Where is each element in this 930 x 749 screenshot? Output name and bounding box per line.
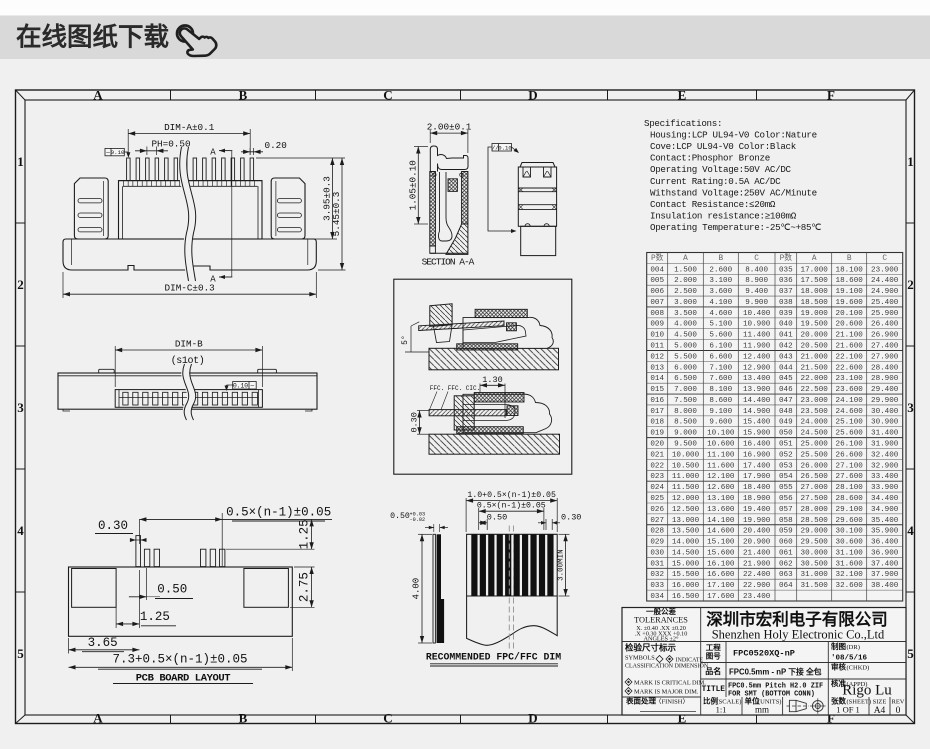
svg-text:008: 008: [650, 310, 664, 318]
svg-text:37.900: 37.900: [871, 571, 899, 579]
svg-text:图号: 图号: [706, 652, 721, 661]
svg-text:009: 009: [650, 321, 664, 329]
svg-text:0.50: 0.50: [390, 512, 410, 521]
svg-text:A: A: [683, 255, 688, 263]
svg-text:27.000: 27.000: [801, 484, 829, 492]
svg-text:CLASSIFICATION DIMENSION: CLASSIFICATION DIMENSION: [625, 664, 709, 670]
svg-text:4: 4: [17, 523, 24, 538]
svg-text:23.500: 23.500: [801, 408, 829, 416]
svg-text:30.100: 30.100: [836, 528, 864, 536]
svg-text:053: 053: [779, 462, 793, 470]
svg-text:014: 014: [650, 375, 664, 383]
svg-text:15.600: 15.600: [707, 549, 735, 557]
svg-text:13.400: 13.400: [743, 375, 771, 383]
svg-text:一般公差: 一般公差: [646, 606, 676, 616]
svg-text:27.400: 27.400: [871, 343, 899, 351]
svg-text:16.100: 16.100: [707, 560, 735, 568]
svg-text:15.100: 15.100: [707, 539, 735, 547]
svg-text:5: 5: [17, 646, 24, 661]
svg-text:018: 018: [650, 419, 664, 427]
svg-text:1:1: 1:1: [716, 705, 727, 715]
svg-text:FPC0520XQ-nP: FPC0520XQ-nP: [733, 649, 795, 659]
svg-text:21.500: 21.500: [801, 364, 829, 372]
svg-text:020: 020: [650, 441, 664, 449]
svg-text:25.500: 25.500: [801, 451, 829, 459]
svg-text:E: E: [678, 88, 687, 103]
svg-text:29.500: 29.500: [801, 539, 829, 547]
svg-text:025: 025: [650, 495, 664, 503]
svg-text:036: 036: [779, 277, 793, 285]
svg-text:30.000: 30.000: [801, 549, 829, 557]
svg-text:11.100: 11.100: [707, 451, 735, 459]
svg-text:035: 035: [779, 266, 793, 274]
svg-text:31.100: 31.100: [836, 549, 864, 557]
svg-text:表面处理: 表面处理: [626, 696, 656, 706]
svg-text:13.500: 13.500: [672, 528, 700, 536]
svg-text:004: 004: [650, 266, 664, 274]
svg-text:019: 019: [650, 430, 664, 438]
svg-text:0.30: 0.30: [98, 519, 128, 533]
svg-text:049: 049: [779, 419, 793, 427]
svg-text:007: 007: [650, 299, 664, 307]
svg-text:045: 045: [779, 375, 793, 383]
svg-text:30.900: 30.900: [871, 419, 899, 427]
svg-text:36.400: 36.400: [871, 539, 899, 547]
svg-text:4.500: 4.500: [674, 332, 697, 340]
svg-text:C: C: [754, 255, 759, 263]
svg-text:12.500: 12.500: [672, 506, 700, 514]
svg-text:19.100: 19.100: [836, 288, 864, 296]
svg-text:FPC0.5mm Pitch H2.0 ZIF: FPC0.5mm Pitch H2.0 ZIF: [728, 683, 823, 691]
svg-text:'08/5/16: '08/5/16: [831, 655, 868, 663]
svg-text:22.600: 22.600: [836, 364, 864, 372]
svg-text:006: 006: [650, 288, 664, 296]
svg-text:6.100: 6.100: [709, 343, 732, 351]
svg-text:Rigo Lu: Rigo Lu: [842, 683, 892, 699]
svg-text:031: 031: [650, 560, 664, 568]
svg-text:4.600: 4.600: [709, 310, 732, 318]
svg-text:022: 022: [650, 462, 664, 470]
svg-text:7.100: 7.100: [709, 364, 732, 372]
svg-text:15.400: 15.400: [743, 419, 771, 427]
svg-text:3.500: 3.500: [674, 310, 697, 318]
svg-text:A: A: [93, 88, 103, 103]
svg-text:3.000: 3.000: [674, 299, 697, 307]
svg-text:F: F: [827, 88, 835, 103]
svg-text:24.400: 24.400: [871, 277, 899, 285]
svg-text:SYMBOLS: SYMBOLS: [625, 655, 655, 662]
svg-text:4.000: 4.000: [674, 321, 697, 329]
svg-text:24.900: 24.900: [871, 288, 899, 296]
svg-text:MARK IS CRITICAL DIM.: MARK IS CRITICAL DIM.: [634, 680, 706, 687]
svg-text:18.500: 18.500: [801, 299, 829, 307]
svg-text:023: 023: [650, 473, 664, 481]
svg-text:PH=0.50: PH=0.50: [151, 138, 190, 149]
svg-text:5.600: 5.600: [709, 332, 732, 340]
svg-text:28.100: 28.100: [836, 484, 864, 492]
svg-text:8.000: 8.000: [674, 408, 697, 416]
svg-text:030: 030: [650, 549, 664, 557]
svg-text:27.900: 27.900: [871, 353, 899, 361]
svg-text:011: 011: [650, 343, 664, 351]
svg-text:8.600: 8.600: [709, 397, 732, 405]
svg-text:25.600: 25.600: [836, 430, 864, 438]
svg-text:5.000: 5.000: [674, 343, 697, 351]
svg-text:(s1ot): (s1ot): [171, 355, 205, 367]
svg-text:18.100: 18.100: [836, 266, 864, 274]
svg-text:1: 1: [17, 154, 24, 169]
svg-text:10.900: 10.900: [743, 321, 771, 329]
svg-text:A4: A4: [874, 706, 886, 716]
svg-text:5.45±0.3: 5.45±0.3: [331, 192, 342, 237]
svg-text:25.900: 25.900: [871, 310, 899, 318]
svg-text:0.50: 0.50: [157, 583, 187, 597]
svg-text:1.30: 1.30: [482, 375, 502, 385]
svg-text:28.500: 28.500: [801, 517, 829, 525]
svg-text:30.400: 30.400: [871, 408, 899, 416]
svg-text:054: 054: [779, 473, 793, 481]
svg-text:4.00: 4.00: [412, 578, 422, 600]
svg-text:9.500: 9.500: [674, 441, 697, 449]
svg-text:26.600: 26.600: [836, 451, 864, 459]
svg-text:6.000: 6.000: [674, 364, 697, 372]
svg-text:32.600: 32.600: [836, 582, 864, 590]
svg-text:26.000: 26.000: [801, 462, 829, 470]
svg-text:1.0+0.5×(n-1)±0.05: 1.0+0.5×(n-1)±0.05: [467, 490, 556, 500]
svg-text:13.600: 13.600: [707, 506, 735, 514]
svg-text:1.25: 1.25: [298, 519, 312, 549]
svg-text:20.000: 20.000: [801, 332, 829, 340]
svg-text:17.100: 17.100: [707, 582, 735, 590]
svg-text:010: 010: [650, 332, 664, 340]
svg-text:13.000: 13.000: [672, 517, 700, 525]
svg-text:3: 3: [17, 400, 24, 415]
svg-text:32.900: 32.900: [871, 462, 899, 470]
svg-text:24.500: 24.500: [801, 430, 829, 438]
svg-text:012: 012: [650, 353, 664, 361]
svg-text:A: A: [210, 148, 216, 158]
svg-text:7.500: 7.500: [674, 397, 697, 405]
svg-text:12.900: 12.900: [743, 364, 771, 372]
svg-text:016: 016: [650, 397, 664, 405]
svg-text:17.400: 17.400: [743, 462, 771, 470]
svg-text:8.500: 8.500: [674, 419, 697, 427]
svg-text:15.900: 15.900: [743, 430, 771, 438]
svg-text:36.900: 36.900: [871, 549, 899, 557]
svg-text:DIM-A±0.1: DIM-A±0.1: [164, 122, 215, 133]
svg-text:33.400: 33.400: [871, 473, 899, 481]
svg-text:5°: 5°: [401, 335, 410, 345]
svg-text:Specifications:: Specifications:: [644, 118, 722, 129]
svg-text:审核: 审核: [831, 662, 846, 672]
svg-text:制图: 制图: [831, 641, 846, 651]
svg-text:29.600: 29.600: [836, 517, 864, 525]
svg-text:30.500: 30.500: [801, 560, 829, 568]
svg-text:060: 060: [779, 539, 793, 547]
svg-text:12.600: 12.600: [707, 484, 735, 492]
svg-text:062: 062: [779, 560, 793, 568]
svg-text:SECTION A-A: SECTION A-A: [422, 257, 475, 268]
svg-text:21.100: 21.100: [836, 332, 864, 340]
svg-text:17.000: 17.000: [801, 266, 829, 274]
svg-text:042: 042: [779, 343, 793, 351]
svg-text:B: B: [718, 255, 723, 263]
svg-text:22.000: 22.000: [801, 375, 829, 383]
svg-text:31.500: 31.500: [801, 582, 829, 590]
svg-text:FPC0.5mm - nP 下接 全包: FPC0.5mm - nP 下接 全包: [729, 667, 822, 677]
svg-text:0.20: 0.20: [265, 140, 287, 151]
svg-text:059: 059: [779, 528, 793, 536]
svg-text:8.400: 8.400: [745, 266, 768, 274]
svg-text:3.65: 3.65: [88, 636, 118, 650]
svg-text:TITLE: TITLE: [702, 686, 726, 694]
svg-text:013: 013: [650, 364, 664, 372]
svg-text:0.30: 0.30: [561, 513, 581, 523]
svg-text:0.30: 0.30: [410, 412, 420, 432]
svg-text:056: 056: [779, 495, 793, 503]
svg-text:058: 058: [779, 517, 793, 525]
svg-text:—: —: [105, 149, 110, 156]
svg-text:12.000: 12.000: [672, 495, 700, 503]
svg-text:D: D: [528, 711, 537, 726]
svg-text:18.000: 18.000: [801, 288, 829, 296]
svg-text:Withstand Voltage:250V AC/Minu: Withstand Voltage:250V AC/Minute: [650, 187, 817, 198]
svg-text:31.000: 31.000: [801, 571, 829, 579]
svg-text:19.000: 19.000: [801, 310, 829, 318]
svg-text:-0.02: -0.02: [410, 517, 426, 523]
svg-text:26.900: 26.900: [871, 332, 899, 340]
svg-text:17.500: 17.500: [801, 277, 829, 285]
svg-text:31.600: 31.600: [836, 560, 864, 568]
svg-text:017: 017: [650, 408, 664, 416]
svg-text:063: 063: [779, 571, 793, 579]
svg-text:21.900: 21.900: [743, 560, 771, 568]
svg-text:20.400: 20.400: [743, 528, 771, 536]
svg-text:043: 043: [779, 353, 793, 361]
svg-text:Shenzhen Holy Electronic Co.,L: Shenzhen Holy Electronic Co.,Ltd: [712, 628, 885, 642]
svg-text:(DR): (DR): [847, 644, 860, 651]
svg-text:10.000: 10.000: [672, 451, 700, 459]
svg-text:11.900: 11.900: [743, 343, 771, 351]
svg-text:2.00±0.1: 2.00±0.1: [427, 122, 472, 133]
svg-text:15.500: 15.500: [672, 571, 700, 579]
svg-text:16.500: 16.500: [672, 593, 700, 601]
svg-text:35.900: 35.900: [871, 528, 899, 536]
svg-text:22.400: 22.400: [743, 571, 771, 579]
svg-text:6.600: 6.600: [709, 353, 732, 361]
svg-text:015: 015: [650, 386, 664, 394]
svg-text:22.900: 22.900: [743, 582, 771, 590]
svg-text:在线图纸下载: 在线图纸下载: [16, 23, 170, 52]
svg-text:SIZE: SIZE: [873, 699, 887, 706]
svg-text:Housing:LCP UL94-V0 Color:Natu: Housing:LCP UL94-V0 Color:Nature: [650, 130, 817, 141]
svg-text:18.400: 18.400: [743, 484, 771, 492]
svg-text:2: 2: [17, 277, 24, 292]
svg-text:3.600: 3.600: [709, 288, 732, 296]
svg-text:9.600: 9.600: [709, 419, 732, 427]
svg-text:0: 0: [896, 706, 901, 716]
svg-text:25.400: 25.400: [871, 299, 899, 307]
svg-text:0.50: 0.50: [487, 513, 507, 523]
svg-text:057: 057: [779, 506, 793, 514]
svg-text:C: C: [882, 255, 887, 263]
svg-text:PCB BOARD LAYOUT: PCB BOARD LAYOUT: [136, 673, 231, 685]
svg-text:14.600: 14.600: [707, 528, 735, 536]
svg-text:13.900: 13.900: [743, 386, 771, 394]
svg-text:TOLERANCES: TOLERANCES: [634, 616, 688, 625]
svg-text:14.100: 14.100: [707, 517, 735, 525]
svg-text:0.10: 0.10: [111, 149, 125, 156]
svg-text:064: 064: [779, 582, 793, 590]
svg-text:A: A: [812, 255, 817, 263]
svg-text:20.600: 20.600: [836, 321, 864, 329]
svg-text:7.600: 7.600: [709, 375, 732, 383]
svg-text:1.500: 1.500: [674, 266, 697, 274]
svg-text:DIM-C±0.3: DIM-C±0.3: [165, 283, 215, 294]
svg-text:18.600: 18.600: [836, 277, 864, 285]
svg-text:21.400: 21.400: [743, 549, 771, 557]
svg-text:29.100: 29.100: [836, 506, 864, 514]
svg-text:10.400: 10.400: [743, 310, 771, 318]
svg-text:4.100: 4.100: [709, 299, 732, 307]
svg-text:4: 4: [907, 523, 914, 538]
svg-text:3: 3: [907, 400, 914, 415]
svg-text:7.000: 7.000: [674, 386, 697, 394]
svg-text:20.500: 20.500: [801, 343, 829, 351]
svg-text:1.05±0.10: 1.05±0.10: [407, 160, 418, 210]
svg-text:5.500: 5.500: [674, 353, 697, 361]
svg-text:16.600: 16.600: [707, 571, 735, 579]
svg-text:2.75: 2.75: [298, 572, 312, 602]
svg-text:029: 029: [650, 539, 664, 547]
svg-text:检验尺寸标示: 检验尺寸标示: [625, 643, 677, 653]
svg-text:34.400: 34.400: [871, 495, 899, 503]
svg-text:2.600: 2.600: [709, 266, 732, 274]
svg-text:23.000: 23.000: [801, 397, 829, 405]
svg-text:9.100: 9.100: [709, 408, 732, 416]
svg-text:7.3+0.5×(n-1)±0.05: 7.3+0.5×(n-1)±0.05: [112, 653, 247, 667]
svg-text:24.100: 24.100: [836, 397, 864, 405]
svg-text:29.900: 29.900: [871, 397, 899, 405]
svg-text:044: 044: [779, 364, 793, 372]
svg-text:032: 032: [650, 571, 664, 579]
svg-text:20.100: 20.100: [836, 310, 864, 318]
svg-text:027: 027: [650, 517, 664, 525]
svg-text:19.900: 19.900: [743, 517, 771, 525]
svg-text:041: 041: [779, 332, 793, 340]
svg-text:038: 038: [779, 299, 793, 307]
svg-text:27.500: 27.500: [801, 495, 829, 503]
svg-text:25.100: 25.100: [836, 419, 864, 427]
svg-text:28.400: 28.400: [871, 364, 899, 372]
svg-text:10.600: 10.600: [707, 441, 735, 449]
svg-text:17.600: 17.600: [707, 593, 735, 601]
svg-text:Current Rating:0.5A AC/DC: Current Rating:0.5A AC/DC: [650, 176, 781, 187]
svg-text:FFC. FFC. CIC.: FFC. FFC. CIC.: [430, 385, 480, 392]
svg-text:B: B: [239, 711, 248, 726]
svg-text:Contact:Phosphor Bronze: Contact:Phosphor Bronze: [650, 153, 770, 164]
svg-text:27.100: 27.100: [836, 462, 864, 470]
svg-text:23.100: 23.100: [836, 375, 864, 383]
svg-text:14.900: 14.900: [743, 408, 771, 416]
svg-text:0.10: 0.10: [233, 383, 248, 390]
svg-text:REV: REV: [892, 699, 905, 706]
svg-text:16.000: 16.000: [672, 582, 700, 590]
svg-text:Contact Resistance:≤20mΩ: Contact Resistance:≤20mΩ: [650, 199, 776, 210]
svg-text:C: C: [383, 88, 392, 103]
svg-text:23.600: 23.600: [836, 386, 864, 394]
svg-text:021: 021: [650, 451, 664, 459]
svg-text:10.100: 10.100: [707, 430, 735, 438]
svg-text:034: 034: [650, 593, 664, 601]
svg-text:9.400: 9.400: [745, 288, 768, 296]
svg-text:38.400: 38.400: [871, 582, 899, 590]
svg-text:052: 052: [779, 451, 793, 459]
svg-text:〈FINISH〉: 〈FINISH〉: [655, 698, 689, 706]
svg-text:25.000: 25.000: [801, 441, 829, 449]
svg-text:30.600: 30.600: [836, 539, 864, 547]
svg-text:5.100: 5.100: [709, 321, 732, 329]
svg-text:19.600: 19.600: [836, 299, 864, 307]
svg-text:3.100: 3.100: [709, 277, 732, 285]
svg-text:23.900: 23.900: [871, 266, 899, 274]
svg-text:(CHKD): (CHKD): [847, 665, 870, 672]
svg-text:050: 050: [779, 430, 793, 438]
svg-text:Operating Voltage:50V AC/DC: Operating Voltage:50V AC/DC: [650, 164, 792, 175]
svg-text:2.000: 2.000: [674, 277, 697, 285]
svg-text:037: 037: [779, 288, 793, 296]
svg-text:13.100: 13.100: [707, 495, 735, 503]
svg-text:RECOMMENDED FPC/FFC DIM: RECOMMENDED FPC/FFC DIM: [426, 652, 561, 663]
svg-text:0.10: 0.10: [498, 145, 512, 152]
svg-text:18.900: 18.900: [743, 495, 771, 503]
svg-text:14.500: 14.500: [672, 549, 700, 557]
svg-text:039: 039: [779, 310, 793, 318]
svg-text:040: 040: [779, 321, 793, 329]
svg-text:8.100: 8.100: [709, 386, 732, 394]
svg-text:055: 055: [779, 484, 793, 492]
svg-text:20.900: 20.900: [743, 539, 771, 547]
svg-text:深圳市宏利电子有限公司: 深圳市宏利电子有限公司: [706, 609, 888, 629]
svg-text:11.500: 11.500: [672, 484, 700, 492]
svg-text:28.900: 28.900: [871, 375, 899, 383]
svg-text:9.000: 9.000: [674, 430, 697, 438]
svg-text:024: 024: [650, 484, 664, 492]
svg-text:mm: mm: [755, 705, 769, 715]
svg-text:048: 048: [779, 408, 793, 416]
svg-text:22.100: 22.100: [836, 353, 864, 361]
svg-text:D: D: [528, 88, 537, 103]
svg-text:5: 5: [907, 646, 914, 661]
svg-text:17.900: 17.900: [743, 473, 771, 481]
svg-text:11.600: 11.600: [707, 462, 735, 470]
svg-text:26.500: 26.500: [801, 473, 829, 481]
svg-text:37.400: 37.400: [871, 560, 899, 568]
svg-text:10.500: 10.500: [672, 462, 700, 470]
svg-text:35.400: 35.400: [871, 517, 899, 525]
svg-text:14.400: 14.400: [743, 397, 771, 405]
svg-text:1 OF 1: 1 OF 1: [836, 705, 860, 715]
svg-text:1.25: 1.25: [140, 610, 170, 624]
svg-text:品名: 品名: [705, 666, 721, 676]
svg-text:MARK IS MAJOR DIM.: MARK IS MAJOR DIM.: [634, 689, 699, 696]
svg-text:14.000: 14.000: [672, 539, 700, 547]
svg-text:Operating Temperature:-25℃~+85: Operating Temperature:-25℃~+85℃: [650, 222, 821, 233]
svg-text:—: —: [249, 382, 254, 389]
svg-text:21.600: 21.600: [836, 343, 864, 351]
svg-text:Insulation resistance:≥100mΩ: Insulation resistance:≥100mΩ: [650, 210, 797, 221]
svg-text:26.100: 26.100: [836, 441, 864, 449]
